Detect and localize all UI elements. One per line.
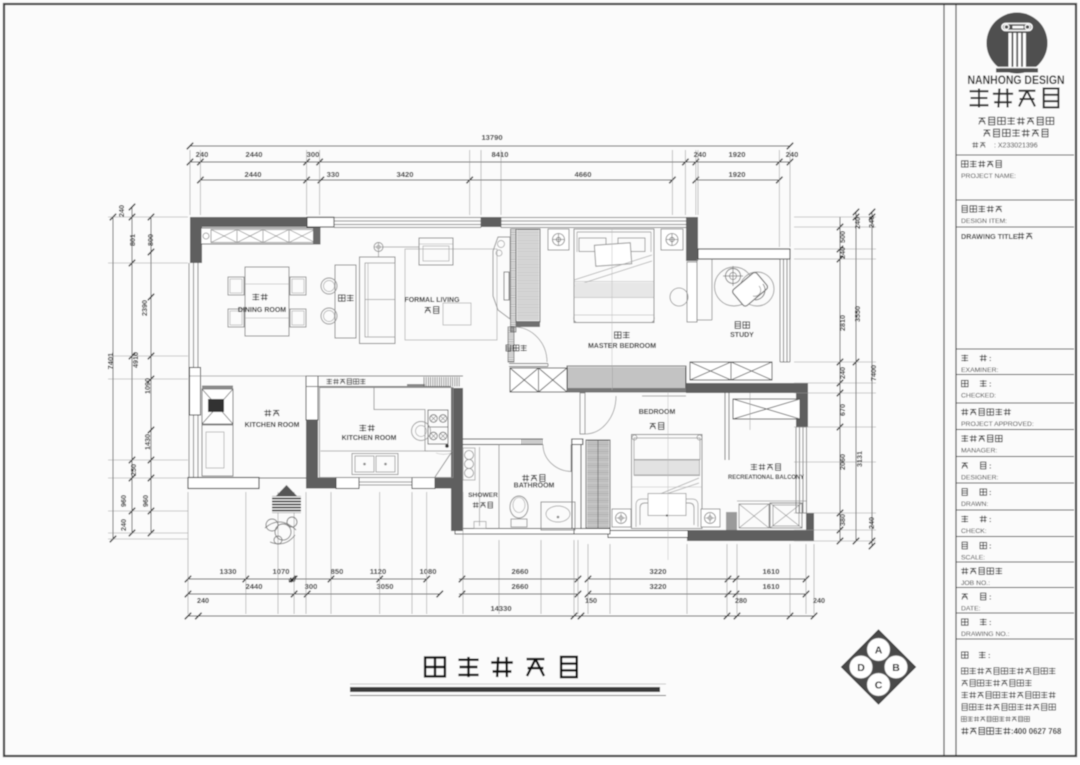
svg-text:1120: 1120 bbox=[370, 567, 386, 576]
svg-text:MANAGER:: MANAGER: bbox=[961, 448, 997, 455]
svg-text:1330: 1330 bbox=[220, 567, 237, 576]
svg-text:CHECKED:: CHECKED: bbox=[961, 393, 996, 400]
svg-text:FORMAL LIVING: FORMAL LIVING bbox=[404, 297, 460, 304]
svg-text:240: 240 bbox=[838, 247, 847, 259]
svg-text:SHOWER: SHOWER bbox=[468, 492, 498, 499]
svg-text::: : bbox=[989, 593, 992, 602]
svg-text:300: 300 bbox=[305, 582, 318, 591]
svg-text:2060: 2060 bbox=[838, 454, 847, 470]
svg-text::: : bbox=[989, 462, 992, 471]
svg-text:240: 240 bbox=[786, 150, 799, 159]
svg-text:DRAWING TITLE: DRAWING TITLE bbox=[961, 232, 1018, 241]
svg-text:C: C bbox=[875, 679, 883, 691]
svg-text:CHECK:: CHECK: bbox=[961, 528, 987, 535]
svg-text:2440: 2440 bbox=[246, 582, 263, 591]
svg-text:1610: 1610 bbox=[763, 582, 780, 591]
svg-text:14330: 14330 bbox=[490, 604, 511, 613]
svg-text:KITCHEN ROOM: KITCHEN ROOM bbox=[342, 435, 397, 442]
svg-text:1080: 1080 bbox=[420, 567, 437, 576]
svg-text:670: 670 bbox=[838, 404, 847, 416]
svg-text:300: 300 bbox=[307, 150, 320, 159]
svg-text:380: 380 bbox=[838, 514, 847, 526]
svg-text:1430: 1430 bbox=[143, 434, 152, 450]
svg-text:DESIGN ITEM:: DESIGN ITEM: bbox=[961, 218, 1007, 225]
svg-text:DATE:: DATE: bbox=[961, 606, 981, 613]
svg-text:D: D bbox=[857, 662, 865, 674]
svg-text:BATHROOM: BATHROOM bbox=[514, 483, 555, 490]
svg-text:KITCHEN ROOM: KITCHEN ROOM bbox=[245, 422, 300, 429]
svg-text:801: 801 bbox=[128, 234, 137, 246]
svg-text:PROJECT NAME:: PROJECT NAME: bbox=[961, 173, 1016, 180]
svg-text:240: 240 bbox=[196, 150, 209, 159]
svg-text:8410: 8410 bbox=[492, 150, 509, 159]
svg-text:2440: 2440 bbox=[245, 170, 262, 179]
svg-text:1090: 1090 bbox=[143, 378, 152, 394]
svg-text::: : bbox=[989, 354, 992, 363]
svg-text:2660: 2660 bbox=[512, 567, 529, 576]
svg-text:250: 250 bbox=[129, 464, 138, 476]
svg-text:240: 240 bbox=[867, 517, 876, 529]
svg-text:STUDY: STUDY bbox=[730, 332, 754, 339]
svg-text::: : bbox=[989, 618, 992, 627]
svg-text:330: 330 bbox=[327, 170, 340, 179]
svg-text:240: 240 bbox=[867, 216, 876, 228]
svg-text:2810: 2810 bbox=[838, 315, 847, 331]
svg-text:2660: 2660 bbox=[512, 582, 529, 591]
svg-text:2390: 2390 bbox=[140, 300, 149, 316]
svg-text:850: 850 bbox=[331, 567, 344, 576]
svg-text:RECREATIONAL BALCONY: RECREATIONAL BALCONY bbox=[728, 474, 805, 481]
svg-text:DRAWING NO.:: DRAWING NO.: bbox=[961, 631, 1010, 638]
svg-text:DINING ROOM: DINING ROOM bbox=[238, 307, 286, 314]
svg-text:2440: 2440 bbox=[246, 150, 263, 159]
svg-text:7400: 7400 bbox=[869, 365, 878, 381]
svg-text:3220: 3220 bbox=[650, 582, 667, 591]
svg-text:BEDROOM: BEDROOM bbox=[639, 409, 676, 416]
svg-text:: X233021396: : X233021396 bbox=[994, 143, 1038, 150]
svg-text::: : bbox=[988, 651, 991, 660]
svg-text:1070: 1070 bbox=[273, 567, 290, 576]
svg-text:3550: 3550 bbox=[853, 306, 862, 322]
svg-text:240: 240 bbox=[117, 205, 126, 217]
svg-text:MASTER BEDROOM: MASTER BEDROOM bbox=[588, 343, 656, 350]
svg-text::: : bbox=[989, 380, 992, 389]
svg-text::: : bbox=[989, 488, 992, 497]
svg-text:4910: 4910 bbox=[131, 352, 140, 368]
svg-text:PROJECT APPROVED:: PROJECT APPROVED: bbox=[961, 421, 1034, 428]
svg-text:DRAWN:: DRAWN: bbox=[961, 501, 988, 508]
svg-text:4660: 4660 bbox=[575, 170, 592, 179]
svg-text:3050: 3050 bbox=[377, 582, 394, 591]
svg-text:240: 240 bbox=[853, 217, 862, 229]
svg-text:240: 240 bbox=[838, 367, 847, 379]
svg-text:B: B bbox=[892, 662, 900, 674]
svg-text:1920: 1920 bbox=[729, 150, 746, 159]
svg-text:A: A bbox=[875, 644, 883, 656]
svg-text:EXAMINER:: EXAMINER: bbox=[961, 367, 999, 374]
svg-text:13790: 13790 bbox=[481, 133, 502, 142]
svg-text:240: 240 bbox=[119, 519, 128, 531]
svg-text:3420: 3420 bbox=[397, 170, 414, 179]
svg-text:3131: 3131 bbox=[855, 451, 864, 467]
svg-text:1920: 1920 bbox=[729, 170, 746, 179]
svg-text:500: 500 bbox=[838, 231, 847, 243]
svg-text:40: 40 bbox=[288, 577, 296, 584]
svg-text:150: 150 bbox=[585, 596, 597, 605]
svg-text:800: 800 bbox=[146, 234, 155, 246]
svg-text:240: 240 bbox=[813, 596, 825, 605]
svg-text:240: 240 bbox=[197, 596, 209, 605]
svg-text:3220: 3220 bbox=[650, 567, 667, 576]
svg-text::: : bbox=[989, 515, 992, 524]
svg-text:7401: 7401 bbox=[106, 352, 115, 370]
svg-text:960: 960 bbox=[141, 495, 150, 507]
svg-text:SCALE:: SCALE: bbox=[961, 555, 985, 562]
svg-text:960: 960 bbox=[119, 495, 128, 507]
svg-text::400 0627 768: :400 0627 768 bbox=[1011, 727, 1062, 736]
svg-text::: : bbox=[989, 542, 992, 551]
svg-text:NANHONG DESIGN: NANHONG DESIGN bbox=[968, 75, 1065, 87]
svg-text:DESIGNER:: DESIGNER: bbox=[961, 475, 999, 482]
svg-text:1610: 1610 bbox=[763, 567, 780, 576]
svg-text:JOB NO.:: JOB NO.: bbox=[961, 580, 990, 587]
